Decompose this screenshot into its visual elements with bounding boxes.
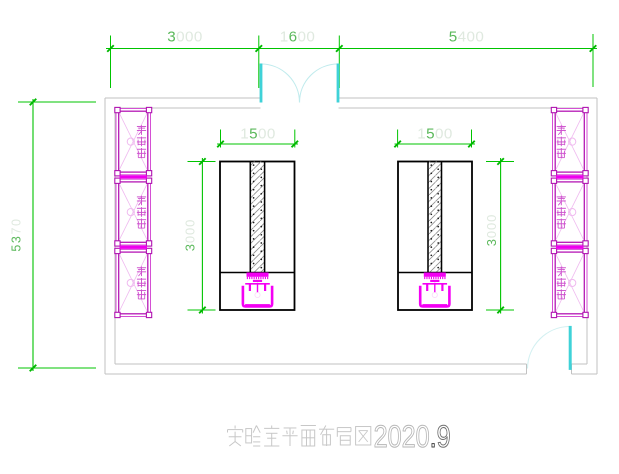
svg-text:3000: 3000: [183, 219, 198, 252]
svg-text:5370: 5370: [10, 217, 24, 251]
svg-text:2020.9: 2020.9: [374, 419, 451, 454]
svg-text:3000: 3000: [484, 214, 499, 247]
svg-text:1600: 1600: [280, 29, 315, 46]
svg-text:1500: 1500: [240, 126, 275, 143]
svg-text:3000: 3000: [167, 29, 202, 46]
svg-text:5400: 5400: [449, 29, 484, 46]
svg-text:1500: 1500: [417, 126, 452, 143]
